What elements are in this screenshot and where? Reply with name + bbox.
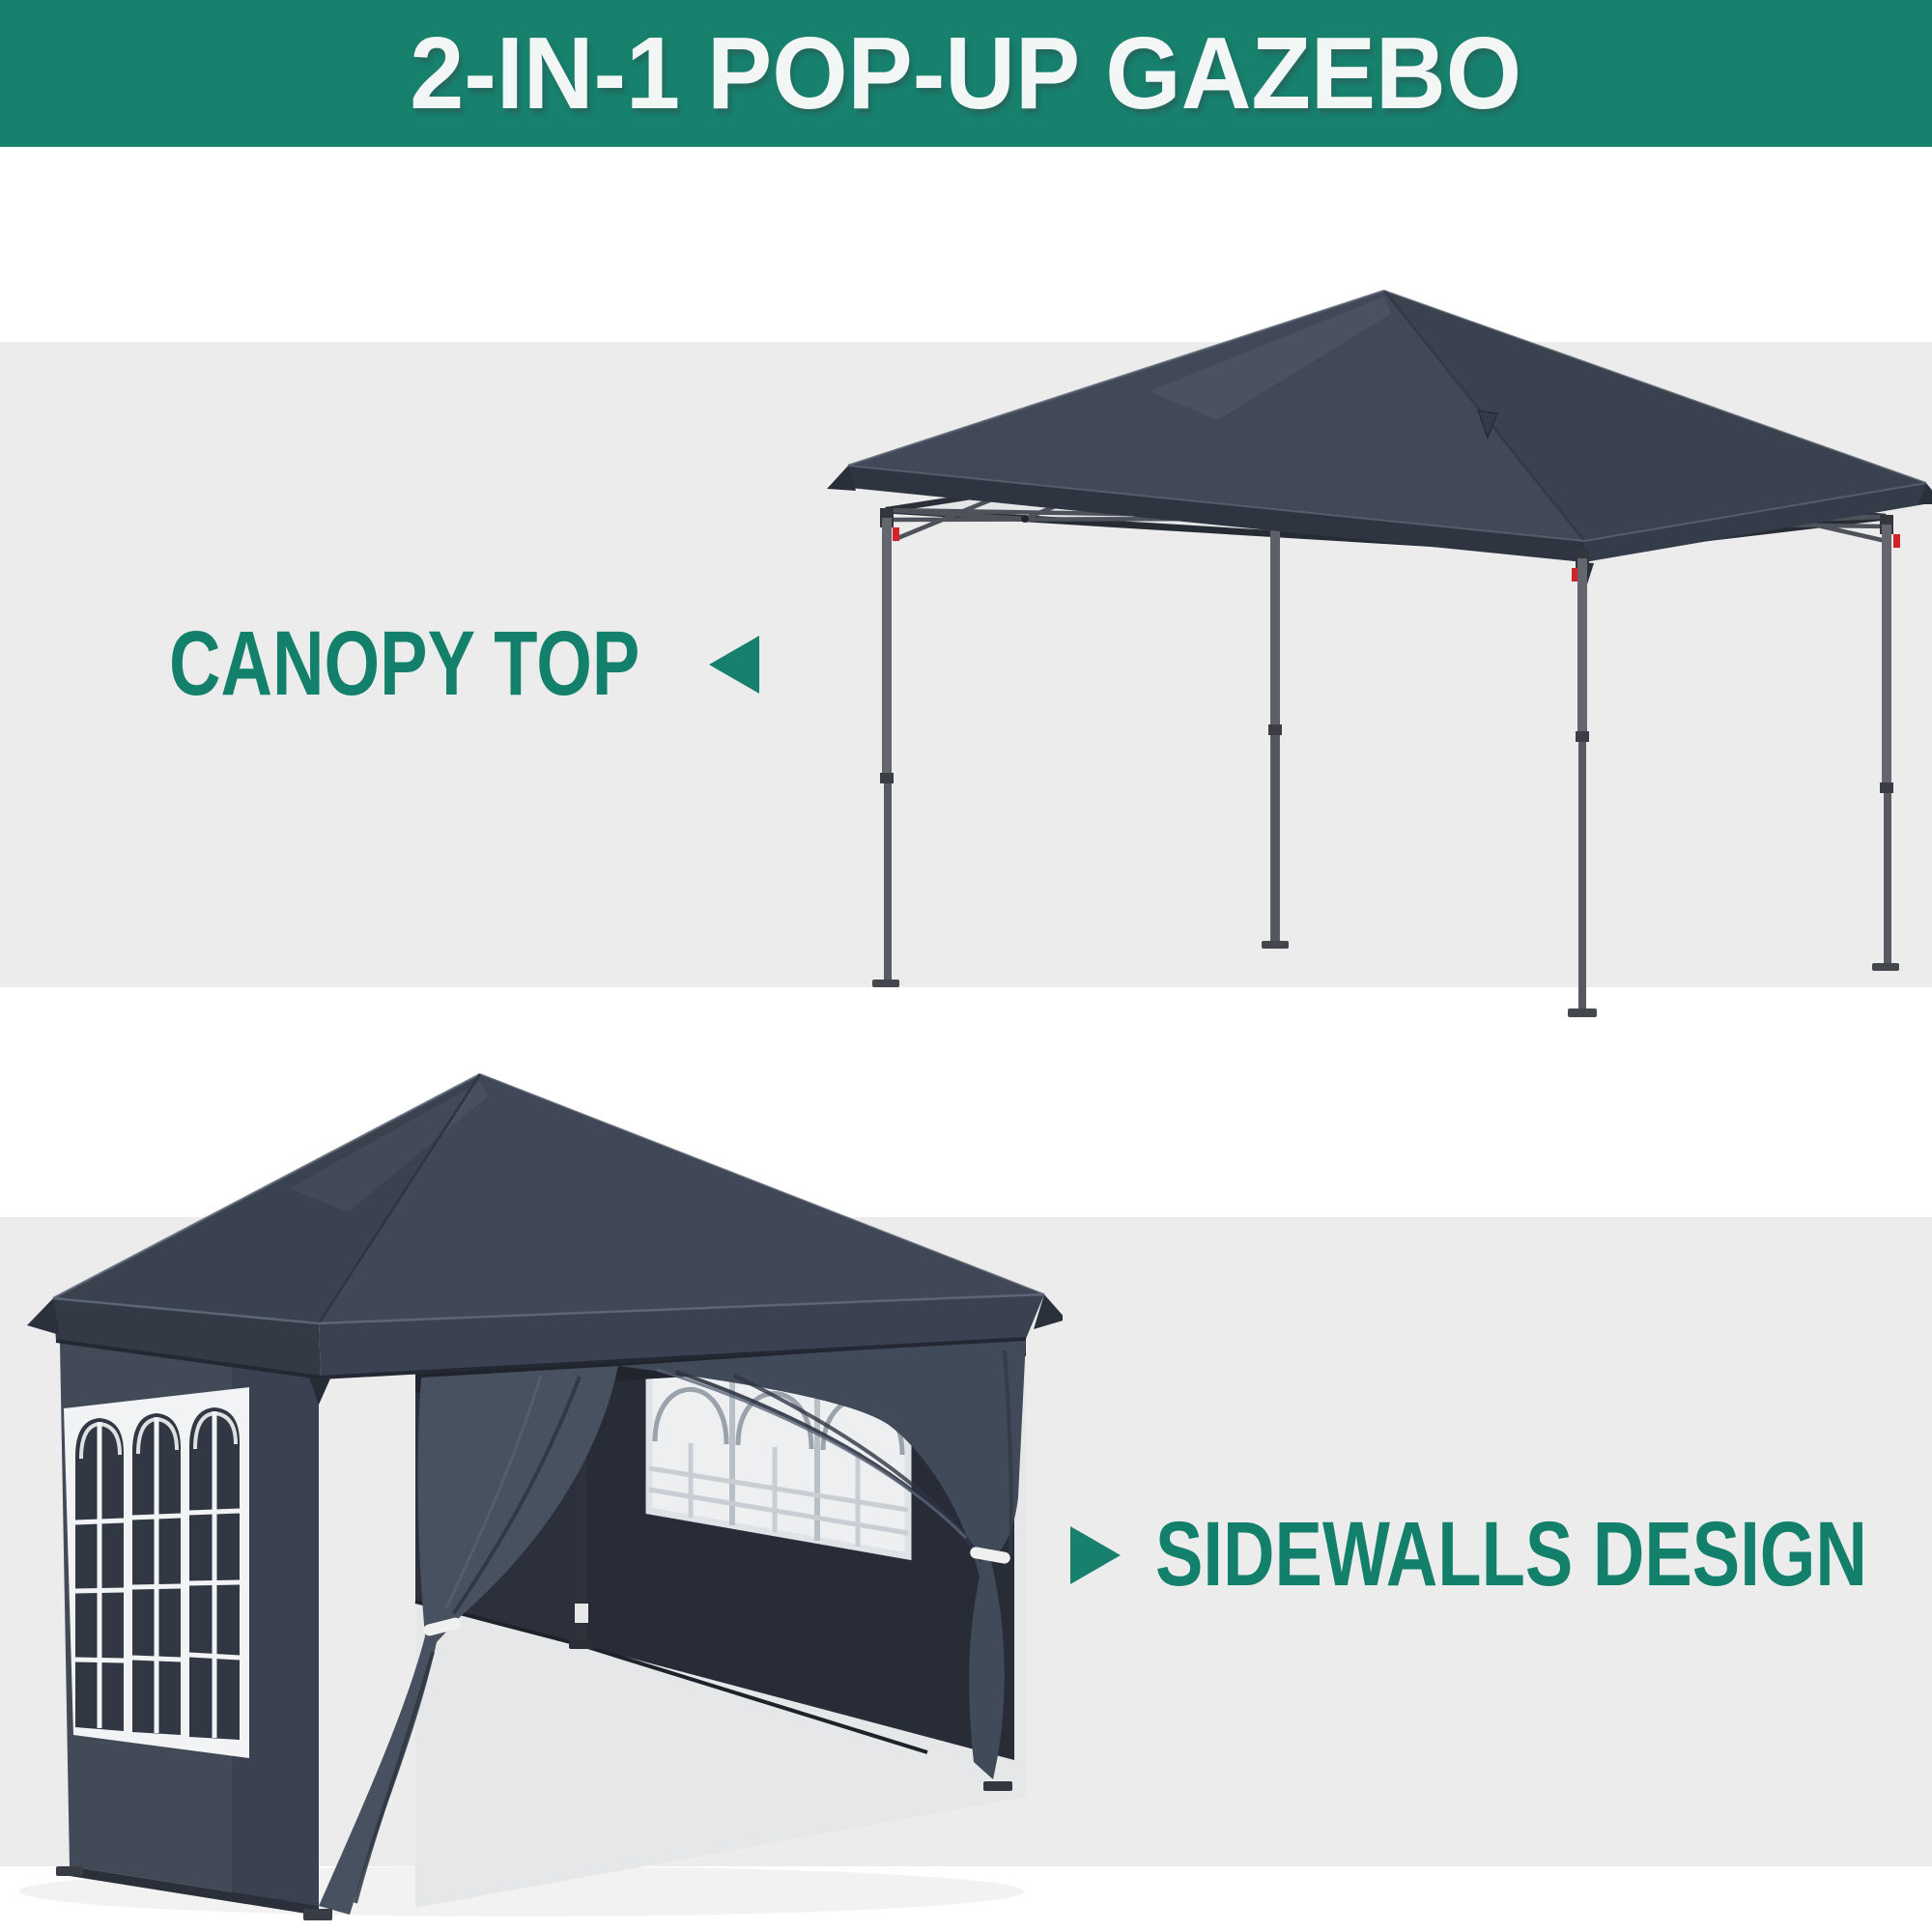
canopy-frame-illustration (811, 203, 1932, 1034)
sidewall-window (64, 1387, 249, 1758)
feature-sidewalls-design-label: SIDEWALLS DESIGN (1155, 1509, 1867, 1601)
banner: 2-IN-1 POP-UP GAZEBO (0, 0, 1932, 147)
feature-canopy-top-label: CANOPY TOP (169, 618, 639, 710)
legs (872, 508, 1900, 1017)
gazebo-sidewalls-illustration (0, 1043, 1063, 1932)
arrow-left-icon (709, 636, 759, 694)
banner-title: 2-IN-1 POP-UP GAZEBO (411, 22, 1522, 125)
front-leg (1568, 549, 1597, 1017)
sidewall-left (56, 1343, 332, 1920)
right-leg (1872, 515, 1900, 971)
feature-canopy-top: CANOPY TOP (169, 618, 759, 710)
product-infographic: 2-IN-1 POP-UP GAZEBO (0, 0, 1932, 1932)
feature-sidewalls-design: SIDEWALLS DESIGN (1070, 1509, 1932, 1601)
arrow-right-icon (1070, 1526, 1121, 1584)
left-leg (872, 508, 899, 987)
